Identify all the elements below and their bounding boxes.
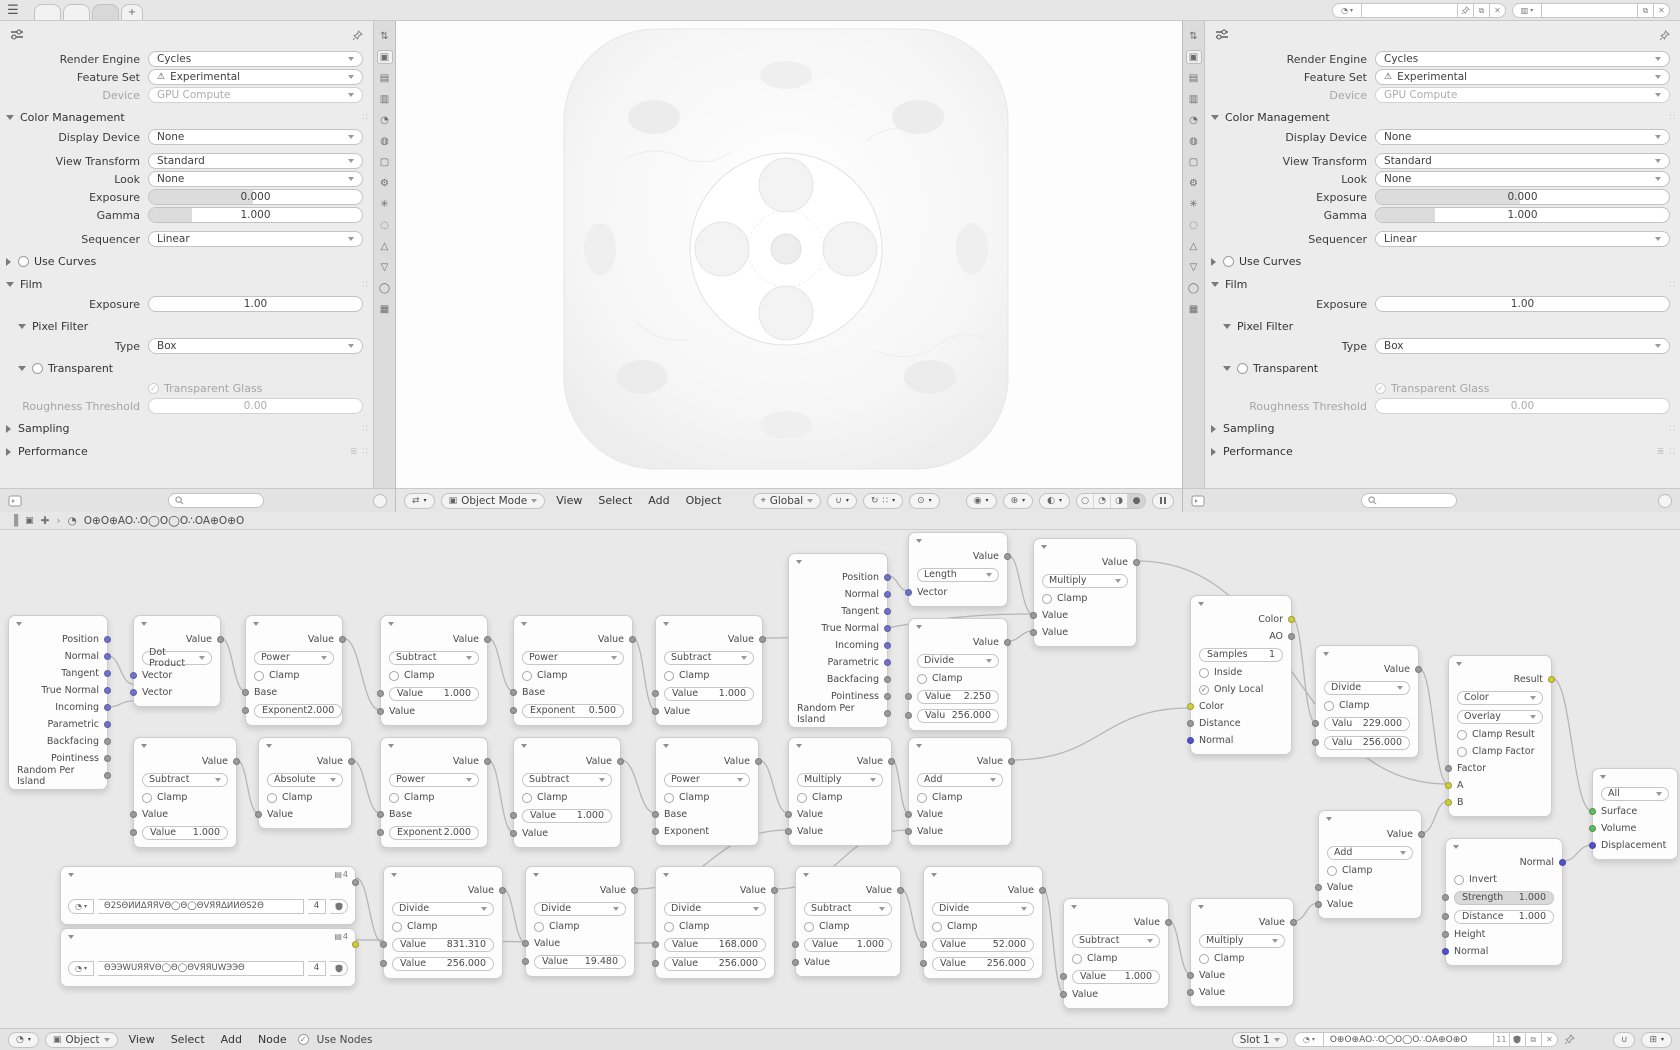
operation-select[interactable]: Subtract: [142, 773, 228, 787]
section-checkbox[interactable]: [32, 363, 43, 374]
section-film[interactable]: Film∷: [6, 276, 369, 293]
node-math-power-3[interactable]: ValuePowerClampBaseExponent2.000: [380, 737, 488, 848]
visibility-dropdown[interactable]: ◉▾: [966, 493, 997, 509]
transform-orientation-select[interactable]: ⌖ Global: [753, 493, 822, 509]
node-header[interactable]: [381, 738, 487, 753]
mode-select[interactable]: ▣ Object Mode: [441, 493, 546, 509]
clamp-checkbox[interactable]: [392, 922, 402, 932]
section-transparent[interactable]: Transparent: [18, 360, 369, 377]
clamp-checkbox[interactable]: [1042, 594, 1052, 604]
collapse-chevron-icon[interactable]: [1198, 602, 1204, 606]
node-header[interactable]: [656, 867, 774, 882]
operation-select[interactable]: Multiply: [1042, 574, 1128, 588]
socket-y[interactable]: [1548, 676, 1555, 683]
render-engine-select[interactable]: Cycles: [1375, 51, 1670, 67]
node-header[interactable]: [656, 616, 762, 631]
socket-g[interactable]: [1008, 758, 1015, 765]
node-bump[interactable]: NormalInvertStrength1.000Distance1.000He…: [1445, 838, 1563, 966]
socket-g[interactable]: [652, 708, 659, 715]
socket-g[interactable]: [792, 959, 799, 966]
section-use-curves[interactable]: Use Curves: [6, 253, 369, 270]
node-math-add-2[interactable]: ValueAddClampValueValue: [1318, 810, 1422, 919]
operation-select[interactable]: All: [1601, 787, 1669, 801]
section-performance[interactable]: Performance≣ ∷: [1211, 443, 1676, 460]
socket-g[interactable]: [217, 636, 224, 643]
look-select[interactable]: None: [1375, 171, 1670, 187]
type-select[interactable]: Box: [148, 338, 363, 354]
operation-select[interactable]: Multiply: [1199, 934, 1285, 948]
view-transform-select[interactable]: Standard: [1375, 153, 1670, 169]
node-header[interactable]: [1593, 769, 1677, 784]
particles-tab-icon[interactable]: ✳: [377, 197, 393, 211]
clamp-checkbox[interactable]: [522, 793, 532, 803]
close-scene-button[interactable]: ✕: [1490, 3, 1506, 18]
display-device-select[interactable]: None: [148, 129, 363, 145]
display-device-select[interactable]: None: [1375, 129, 1670, 145]
properties-search-input[interactable]: [168, 493, 264, 508]
socket-g[interactable]: [1060, 991, 1067, 998]
operation-select[interactable]: Power: [522, 651, 624, 665]
add-workspace-tab-button[interactable]: +: [121, 4, 143, 20]
node-math-divide-2[interactable]: ValueDivideClampValu229.000Valu256.000: [1315, 645, 1419, 758]
node-header[interactable]: [796, 867, 900, 882]
socket-g[interactable]: [484, 636, 491, 643]
viewport-canvas[interactable]: [396, 21, 1182, 488]
value-value-field[interactable]: Value1.000: [522, 809, 612, 823]
collapse-chevron-icon[interactable]: [796, 560, 802, 564]
exposure-slider[interactable]: 0.000: [1375, 189, 1670, 205]
section-checkbox[interactable]: [1237, 363, 1248, 374]
node-header[interactable]: [526, 867, 634, 882]
socket-y[interactable]: [1288, 616, 1295, 623]
clamp-checkbox[interactable]: [534, 922, 544, 932]
collapse-chevron-icon[interactable]: [803, 873, 809, 877]
new-material-copy-button[interactable]: ⧉: [1526, 1032, 1542, 1047]
value-value-field[interactable]: Value1.000: [804, 938, 892, 952]
valu-value-field[interactable]: Valu256.000: [917, 709, 999, 723]
socket-g[interactable]: [884, 710, 891, 717]
section-color-management[interactable]: Color Management∷: [6, 109, 369, 126]
node-header[interactable]: [656, 738, 758, 753]
clamp-checkbox[interactable]: [1199, 954, 1209, 964]
select-menu[interactable]: Select: [593, 494, 637, 507]
viewport-3d[interactable]: ⇄▾ ▣ Object Mode View Select Add Object …: [396, 21, 1182, 512]
socket-g[interactable]: [1004, 553, 1011, 560]
value-value-field[interactable]: Value256.000: [664, 957, 766, 971]
operation-select[interactable]: Subtract: [804, 902, 892, 916]
socket-g[interactable]: [785, 828, 792, 835]
roughness-threshold-slider[interactable]: 0.00: [148, 398, 363, 414]
socket-g[interactable]: [104, 738, 111, 745]
operation-select[interactable]: Add: [917, 773, 1003, 787]
value-value-field[interactable]: Value168.000: [664, 938, 766, 952]
collapse-chevron-icon[interactable]: [1456, 662, 1462, 666]
operation-select[interactable]: Multiply: [797, 773, 883, 787]
node-header[interactable]: [789, 554, 887, 569]
copy-view-layer-button[interactable]: ⧉: [1638, 3, 1654, 18]
section-checkbox[interactable]: [1223, 256, 1234, 267]
socket-g[interactable]: [377, 690, 384, 697]
section-sampling[interactable]: Sampling∷: [6, 420, 369, 437]
clamp-checkbox[interactable]: [917, 674, 927, 684]
value-value-field[interactable]: Value2.250: [917, 690, 999, 704]
physics-tab-icon[interactable]: ◌: [1186, 218, 1202, 232]
socket-g[interactable]: [510, 707, 517, 714]
texture-tab-icon[interactable]: ▦: [1186, 302, 1202, 316]
collapse-chevron-icon[interactable]: [521, 744, 527, 748]
socket-g[interactable]: [352, 879, 359, 886]
particles-tab-icon[interactable]: ✳: [1186, 197, 1202, 211]
socket-g[interactable]: [884, 693, 891, 700]
tool-tab-icon[interactable]: ⇅: [1186, 29, 1202, 43]
snap-toggle-button[interactable]: ∪: [1613, 1032, 1636, 1048]
node-header[interactable]: [1191, 899, 1293, 914]
copy-scene-button[interactable]: ⧉: [1474, 3, 1490, 18]
transparent-glass-checkbox[interactable]: ✓: [1375, 383, 1386, 394]
socket-g[interactable]: [510, 689, 517, 696]
socket-g[interactable]: [617, 758, 624, 765]
fake-user-shield-button[interactable]: [330, 899, 348, 914]
editor-type-button[interactable]: ⇄▾: [404, 493, 435, 509]
socket-g[interactable]: [652, 690, 659, 697]
collapse-chevron-icon[interactable]: [521, 622, 527, 626]
socket-g[interactable]: [242, 689, 249, 696]
select-menu[interactable]: Select: [166, 1033, 210, 1046]
node-datablock-2[interactable]: ▤4◔▾ΘЭЭWUЯЯVΘ◯Θ◯ΘVЯЯUWЭЭΘ4: [60, 928, 356, 987]
node-header[interactable]: [134, 738, 236, 753]
socket-g[interactable]: [905, 811, 912, 818]
operation-select[interactable]: Overlay: [1457, 710, 1543, 724]
socket-g[interactable]: [510, 812, 517, 819]
editor-type-icon[interactable]: [1191, 495, 1205, 507]
view-menu[interactable]: View: [551, 494, 587, 507]
datablock-users-count[interactable]: 4: [308, 899, 326, 914]
operation-select[interactable]: Divide: [534, 902, 626, 916]
pause-render-button[interactable]: [1152, 493, 1174, 509]
node-header[interactable]: [1449, 656, 1551, 671]
socket-g[interactable]: [652, 828, 659, 835]
node-math-absolute[interactable]: ValueAbsoluteClampValue: [258, 737, 352, 829]
operation-select[interactable]: Divide: [1324, 681, 1410, 695]
socket-g[interactable]: [1315, 901, 1322, 908]
view-menu[interactable]: View: [124, 1033, 160, 1046]
modifiers-tab-icon[interactable]: ⚙: [377, 176, 393, 190]
operation-select[interactable]: Absolute: [267, 773, 343, 787]
socket-g[interactable]: [1165, 919, 1172, 926]
socket-g[interactable]: [484, 758, 491, 765]
node-math-subtract-1[interactable]: ValueSubtractClampValue1.000Value: [380, 615, 488, 726]
shading-solid-button[interactable]: ◔: [1094, 494, 1111, 508]
operation-select[interactable]: Color: [1457, 691, 1543, 705]
collapse-handle-icon[interactable]: ▐: [10, 515, 18, 527]
collapse-chevron-icon[interactable]: [916, 539, 922, 543]
pin-icon[interactable]: [1659, 30, 1670, 41]
object-data-tab-icon[interactable]: ▽: [377, 260, 393, 274]
socket-b[interactable]: [1187, 737, 1194, 744]
node-header[interactable]: [1316, 646, 1418, 661]
socket-b[interactable]: [1589, 842, 1596, 849]
socket-g[interactable]: [652, 811, 659, 818]
shading-rendered-button[interactable]: ●: [1128, 494, 1145, 508]
socket-gr[interactable]: [1589, 825, 1596, 832]
socket-v[interactable]: [884, 574, 891, 581]
socket-g[interactable]: [631, 887, 638, 894]
object-icon[interactable]: ▣: [25, 516, 34, 526]
operation-select[interactable]: Divide: [932, 902, 1034, 916]
workspace-tab-3[interactable]: [92, 4, 119, 20]
datablock-name-field[interactable]: ΘЭЭWUЯЯVΘ◯Θ◯ΘVЯЯUWЭЭΘ: [98, 961, 304, 976]
socket-g[interactable]: [380, 960, 387, 967]
socket-g[interactable]: [1288, 633, 1295, 640]
clamp-checkbox[interactable]: [932, 922, 942, 932]
socket-g[interactable]: [1315, 884, 1322, 891]
collapse-chevron-icon[interactable]: [388, 622, 394, 626]
socket-g[interactable]: [884, 676, 891, 683]
options-circle-button[interactable]: [1658, 494, 1672, 508]
socket-v[interactable]: [884, 625, 891, 632]
add-menu[interactable]: Add: [643, 494, 674, 507]
operation-select[interactable]: Divide: [392, 902, 494, 916]
collapse-chevron-icon[interactable]: [391, 873, 397, 877]
fake-user-shield-button[interactable]: [1510, 1032, 1526, 1047]
add-menu[interactable]: Add: [216, 1033, 247, 1046]
material-tab-icon[interactable]: ◯: [1186, 281, 1202, 295]
proportional-editing-button[interactable]: ⊙▾: [909, 493, 940, 509]
pin-icon[interactable]: [352, 30, 363, 41]
section-use-curves[interactable]: Use Curves: [1211, 253, 1676, 270]
socket-y[interactable]: [1445, 799, 1452, 806]
overlays-dropdown[interactable]: ◐▾: [1039, 493, 1070, 509]
socket-g[interactable]: [1445, 765, 1452, 772]
collapse-chevron-icon[interactable]: [916, 744, 922, 748]
node-header[interactable]: [924, 867, 1042, 882]
node-canvas[interactable]: PositionNormalTangentTrue NormalIncoming…: [0, 530, 1680, 1028]
section-grip-icon[interactable]: ∷: [362, 424, 369, 434]
socket-v[interactable]: [884, 591, 891, 598]
gamma-slider[interactable]: 1.000: [1375, 207, 1670, 223]
gizmos-dropdown[interactable]: ⊕▾: [1003, 493, 1034, 509]
shading-wireframe-button[interactable]: ○: [1077, 494, 1094, 508]
node-math-power-4[interactable]: ValuePowerClampBaseExponent: [655, 737, 759, 846]
socket-g[interactable]: [377, 708, 384, 715]
clamp-result-checkbox[interactable]: [1457, 730, 1467, 740]
socket-v[interactable]: [104, 670, 111, 677]
editor-type-icon[interactable]: [8, 495, 22, 507]
use-nodes-checkbox[interactable]: ✓: [298, 1034, 309, 1045]
value-value-field[interactable]: Value52.000: [932, 938, 1034, 952]
clamp-factor-checkbox[interactable]: [1457, 747, 1467, 757]
node-math-multiply-3[interactable]: ValueMultiplyClampValueValue: [1190, 898, 1294, 1007]
socket-g[interactable]: [759, 636, 766, 643]
exposure-slider[interactable]: 1.00: [1375, 296, 1670, 312]
valu-value-field[interactable]: Valu256.000: [1324, 736, 1410, 750]
exponent-value-field[interactable]: Exponent0.500: [522, 704, 624, 718]
node-header[interactable]: [909, 619, 1007, 634]
collapse-chevron-icon[interactable]: [1041, 545, 1047, 549]
node-math-subtract-3[interactable]: ValueSubtractClampValueValue1.000: [133, 737, 237, 848]
node-output-aov[interactable]: AllSurfaceVolumeDisplacement: [1592, 768, 1678, 860]
socket-v[interactable]: [104, 636, 111, 643]
socket-g[interactable]: [377, 829, 384, 836]
node-math-divide-6[interactable]: ValueDivideClampValue52.000Value256.000: [923, 866, 1043, 979]
collapse-chevron-icon[interactable]: [68, 873, 74, 877]
node-header[interactable]: ▤4: [61, 929, 355, 944]
operation-select[interactable]: Power: [254, 651, 334, 665]
type-select[interactable]: Box: [1375, 338, 1670, 354]
socket-g[interactable]: [522, 958, 529, 965]
socket-g[interactable]: [1039, 887, 1046, 894]
socket-g[interactable]: [629, 636, 636, 643]
collapse-chevron-icon[interactable]: [266, 744, 272, 748]
properties-editor-icon[interactable]: [10, 29, 24, 41]
node-math-divide-4[interactable]: ValueDivideClampValueValue19.480: [525, 866, 635, 977]
node-header[interactable]: [1034, 539, 1136, 554]
scene-tab-icon[interactable]: ◔: [377, 113, 393, 127]
socket-g[interactable]: [1030, 612, 1037, 619]
clamp-checkbox[interactable]: [522, 671, 532, 681]
look-select[interactable]: None: [148, 171, 363, 187]
clamp-checkbox[interactable]: [267, 793, 277, 803]
collapse-chevron-icon[interactable]: [916, 625, 922, 629]
collapse-chevron-icon[interactable]: [16, 622, 22, 626]
node-header[interactable]: [259, 738, 351, 753]
socket-gr[interactable]: [1589, 808, 1596, 815]
socket-v[interactable]: [884, 659, 891, 666]
socket-g[interactable]: [792, 941, 799, 948]
operation-select[interactable]: Dot Product: [142, 651, 212, 665]
physics-tab-icon[interactable]: ◌: [377, 218, 393, 232]
node-math-power-1[interactable]: ValuePowerClampBaseExponent2.000: [245, 615, 343, 726]
operation-select[interactable]: Length: [917, 568, 999, 582]
node-header[interactable]: [9, 616, 107, 631]
properties-editor-icon[interactable]: [1215, 29, 1229, 41]
clamp-checkbox[interactable]: [804, 922, 814, 932]
material-sphere-icon[interactable]: ◔: [68, 515, 77, 527]
socket-g[interactable]: [1004, 639, 1011, 646]
socket-g[interactable]: [1418, 831, 1425, 838]
render-tab-icon[interactable]: ▣: [1186, 50, 1202, 64]
socket-g[interactable]: [920, 941, 927, 948]
value-value-field[interactable]: Value256.000: [392, 957, 494, 971]
socket-v[interactable]: [104, 653, 111, 660]
modifiers-tab-icon[interactable]: ⚙: [1186, 176, 1202, 190]
constraints-tab-icon[interactable]: △: [377, 239, 393, 253]
section-grip-icon[interactable]: ≣ ∷: [1657, 447, 1676, 457]
socket-v[interactable]: [104, 721, 111, 728]
object-tab-icon[interactable]: ▢: [1186, 155, 1202, 169]
socket-g[interactable]: [130, 829, 137, 836]
socket-g[interactable]: [905, 693, 912, 700]
collapse-chevron-icon[interactable]: [796, 744, 802, 748]
inside-checkbox[interactable]: [1199, 668, 1209, 678]
node-math-power-2[interactable]: ValuePowerClampBaseExponent0.500: [513, 615, 633, 726]
clamp-checkbox[interactable]: [917, 793, 927, 803]
feature-set-select[interactable]: ⚠Experimental: [1375, 69, 1670, 85]
collapse-chevron-icon[interactable]: [1326, 817, 1332, 821]
collapse-chevron-icon[interactable]: [663, 873, 669, 877]
exposure-slider[interactable]: 1.00: [148, 296, 363, 312]
shading-material-button[interactable]: ◑: [1111, 494, 1128, 508]
clamp-checkbox[interactable]: [664, 671, 674, 681]
node-math-multiply-1[interactable]: ValueMultiplyClampValueValue: [788, 737, 892, 846]
section-film[interactable]: Film∷: [1211, 276, 1676, 293]
texture-tab-icon[interactable]: ▦: [377, 302, 393, 316]
node-header[interactable]: [384, 867, 502, 882]
node-geometry-1[interactable]: PositionNormalTangentTrue NormalIncoming…: [8, 615, 108, 790]
tool-tab-icon[interactable]: ⇅: [377, 29, 393, 43]
socket-g[interactable]: [233, 758, 240, 765]
exponent-value-field[interactable]: Exponent2.000: [254, 704, 342, 718]
socket-v[interactable]: [130, 672, 137, 679]
datablock-name-field[interactable]: Θ2ЅΘИИΔЯЯVΘ◯Θ◯ΘVЯЯΔИИΘЅ2Θ: [98, 899, 304, 914]
collapse-chevron-icon[interactable]: [141, 744, 147, 748]
collapse-chevron-icon[interactable]: [1198, 905, 1204, 909]
socket-y[interactable]: [1187, 703, 1194, 710]
socket-g[interactable]: [1187, 989, 1194, 996]
section-color-management[interactable]: Color Management∷: [1211, 109, 1676, 126]
exposure-slider[interactable]: 0.000: [148, 189, 363, 205]
node-math-subtract-6[interactable]: ValueSubtractClampValue1.000Value: [1063, 898, 1169, 1009]
section-pixel-filter[interactable]: Pixel Filter: [1223, 318, 1676, 335]
operation-select[interactable]: Power: [389, 773, 479, 787]
socket-g[interactable]: [1442, 894, 1449, 901]
socket-g[interactable]: [905, 712, 912, 719]
socket-b[interactable]: [1442, 948, 1449, 955]
section-grip-icon[interactable]: ∷: [1669, 280, 1676, 290]
socket-g[interactable]: [888, 758, 895, 765]
socket-v[interactable]: [884, 642, 891, 649]
socket-v[interactable]: [130, 689, 137, 696]
node-header[interactable]: [514, 616, 632, 631]
pin-scene-button[interactable]: [1458, 3, 1474, 18]
socket-g[interactable]: [348, 758, 355, 765]
socket-g[interactable]: [1030, 629, 1037, 636]
node-header[interactable]: [381, 616, 487, 631]
view-layer-tab-icon[interactable]: ▥: [377, 92, 393, 106]
socket-g[interactable]: [104, 755, 111, 762]
socket-b[interactable]: [1559, 859, 1566, 866]
clamp-checkbox[interactable]: [389, 671, 399, 681]
node-math-divide-1[interactable]: ValueDivideClampValue2.250Valu256.000: [908, 618, 1008, 731]
operation-select[interactable]: Subtract: [664, 651, 754, 665]
operation-select[interactable]: Add: [1327, 846, 1413, 860]
render-tab-icon[interactable]: ▣: [377, 50, 393, 64]
collapse-chevron-icon[interactable]: [253, 622, 259, 626]
node-ambient-occlusion[interactable]: ColorAOSamples1Inside✓Only LocalColorDis…: [1190, 595, 1292, 755]
socket-g[interactable]: [104, 772, 111, 779]
clamp-checkbox[interactable]: [1324, 701, 1334, 711]
node-math-subtract-2[interactable]: ValueSubtractClampValue1.000Value: [655, 615, 763, 726]
socket-g[interactable]: [510, 830, 517, 837]
view-layer-tab-icon[interactable]: ▥: [1186, 92, 1202, 106]
section-grip-icon[interactable]: ∷: [1669, 113, 1676, 123]
strength-value-field[interactable]: Strength1.000: [1454, 891, 1554, 905]
socket-y[interactable]: [352, 941, 359, 948]
socket-g[interactable]: [1187, 720, 1194, 727]
distance-value-field[interactable]: Distance1.000: [1454, 910, 1554, 924]
socket-g[interactable]: [1290, 919, 1297, 926]
clamp-checkbox[interactable]: [1072, 954, 1082, 964]
socket-v[interactable]: [104, 687, 111, 694]
value-value-field[interactable]: Value1.000: [664, 687, 754, 701]
operation-select[interactable]: Subtract: [389, 651, 479, 665]
node-header[interactable]: [1446, 839, 1562, 854]
clamp-checkbox[interactable]: [664, 793, 674, 803]
socket-g[interactable]: [652, 941, 659, 948]
node-header[interactable]: [909, 738, 1011, 753]
node-math-divide-5[interactable]: ValueDivideClampValue168.000Value256.000: [655, 866, 775, 979]
scene-tab-icon[interactable]: ◔: [1186, 113, 1202, 127]
